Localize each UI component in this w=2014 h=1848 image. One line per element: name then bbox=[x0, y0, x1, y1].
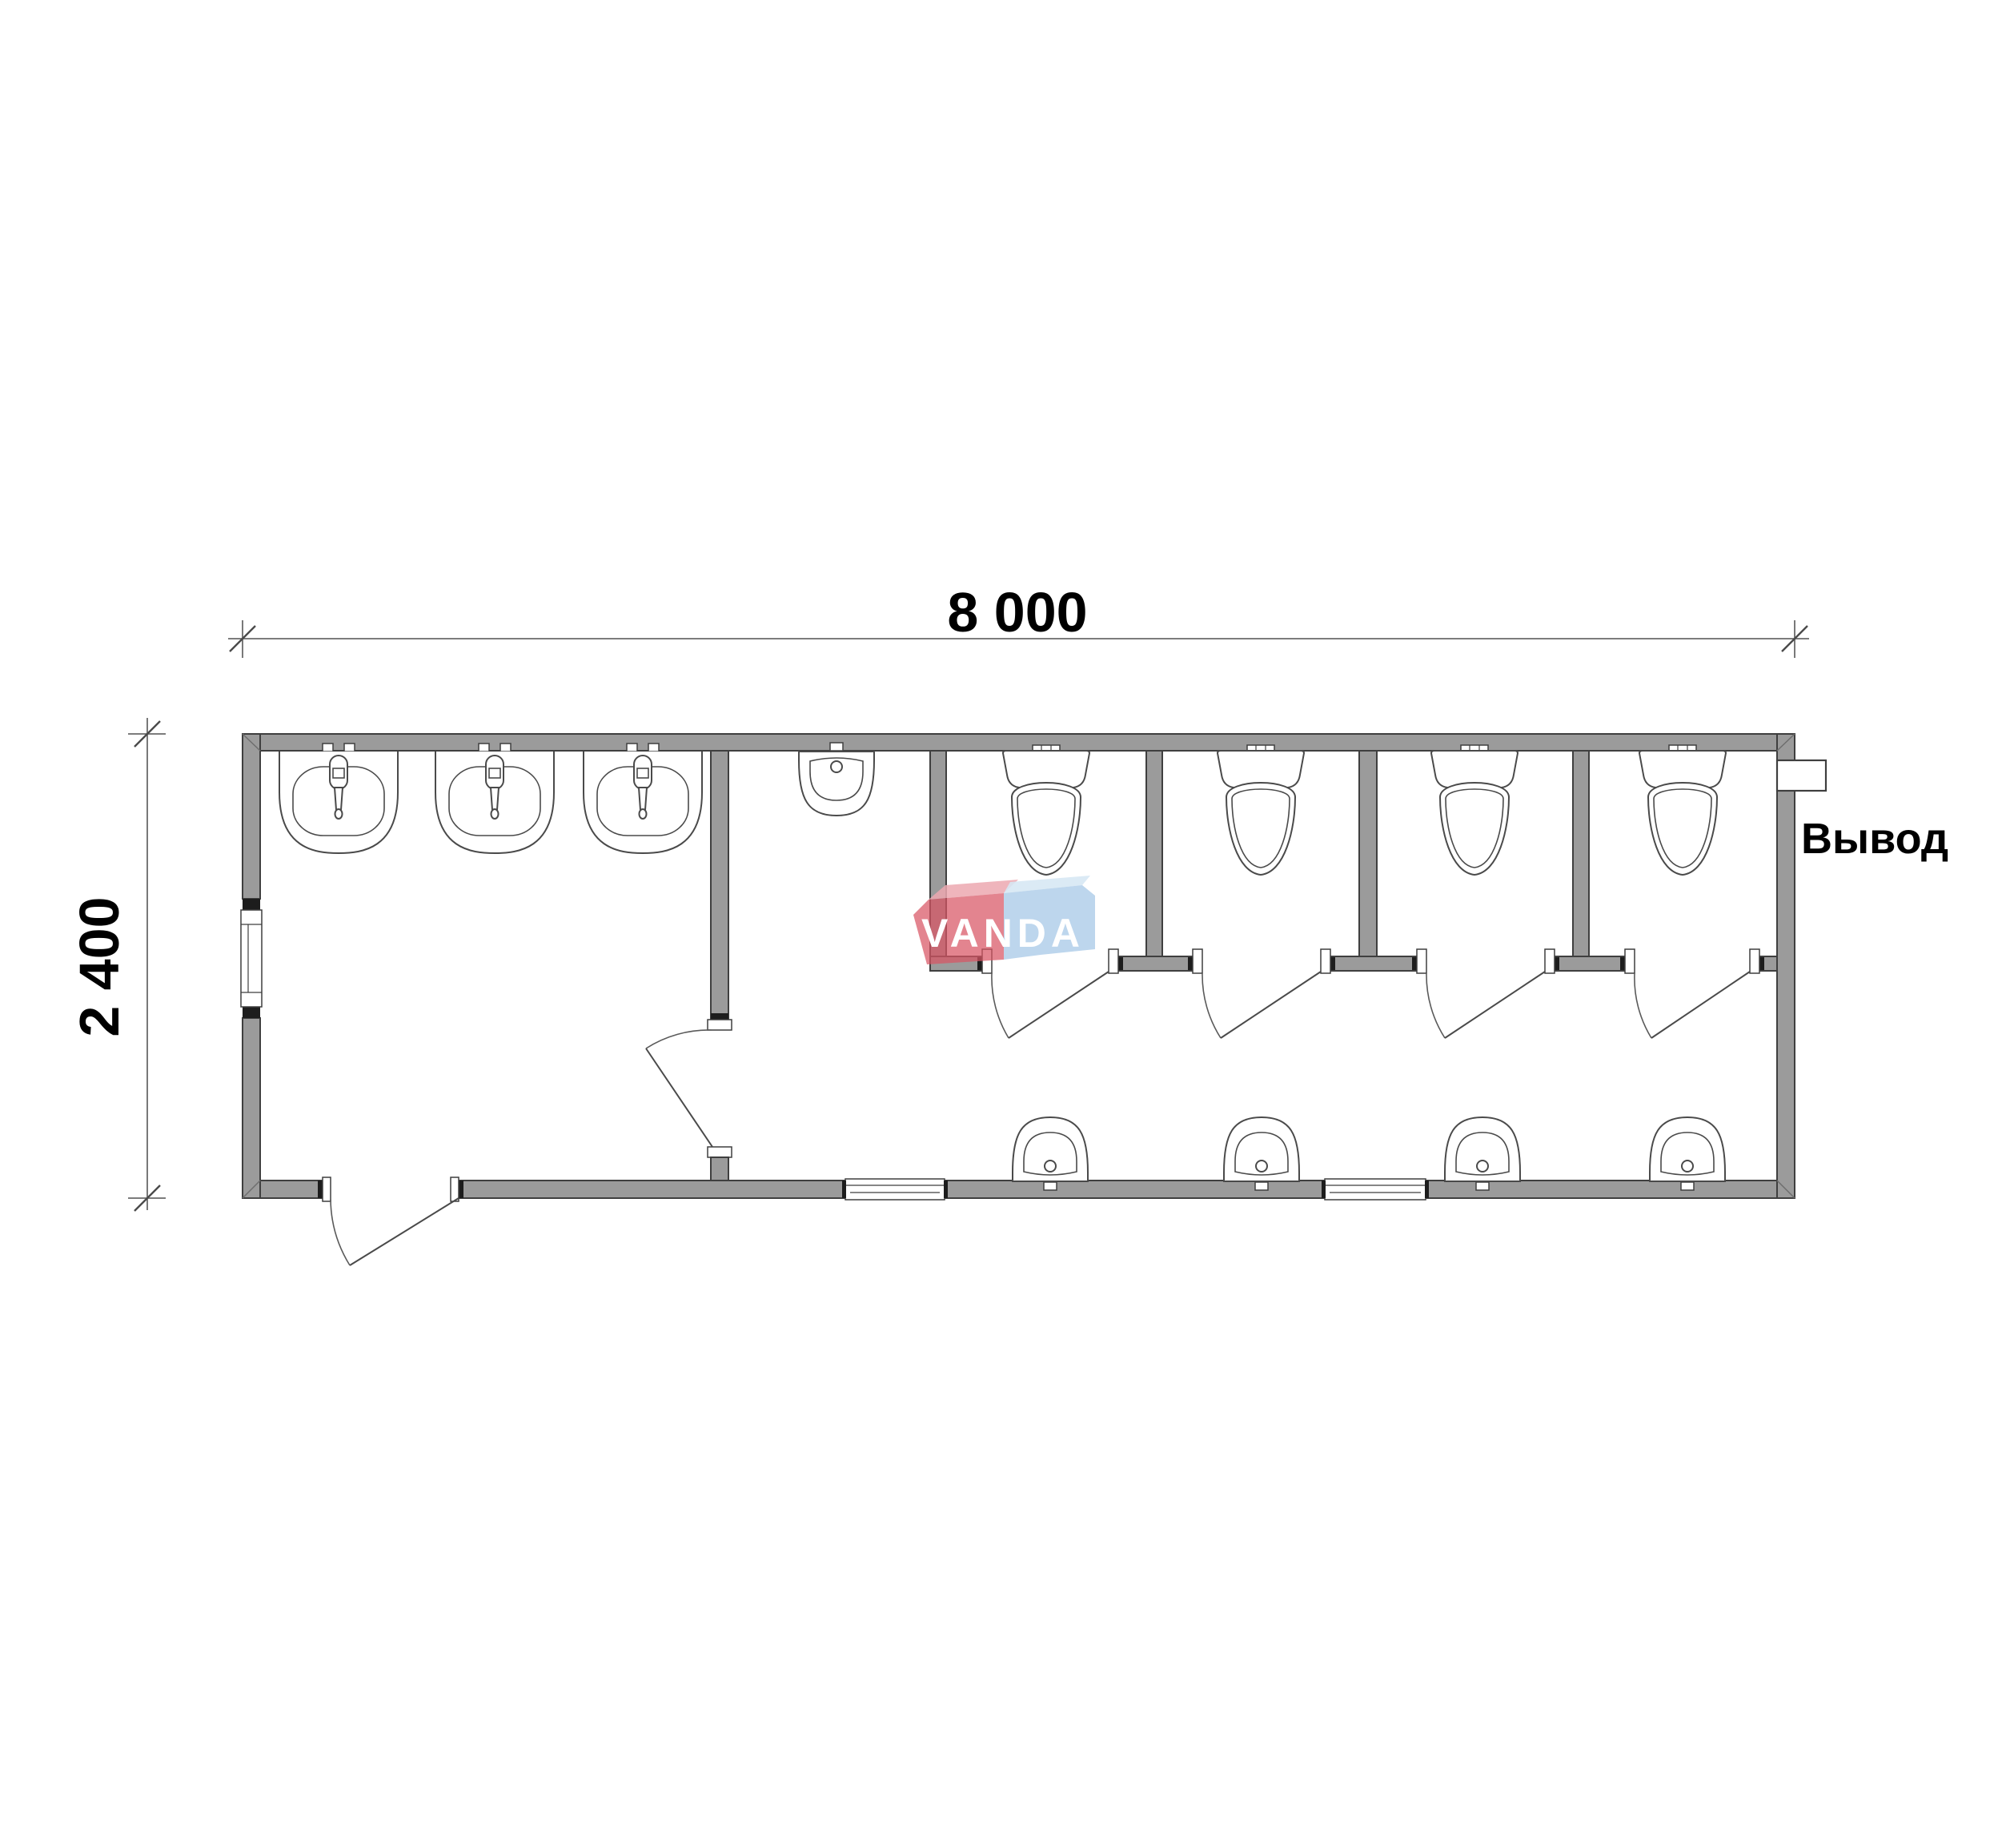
right-wall bbox=[1777, 734, 1795, 1198]
urinal-icon bbox=[1650, 1117, 1725, 1190]
stall-door-swing-1 bbox=[992, 972, 1109, 1038]
urinal-icon bbox=[799, 743, 874, 816]
stall-partition-4 bbox=[1573, 751, 1589, 956]
outlet-label: Вывод bbox=[1801, 815, 1948, 863]
bottom-window-1 bbox=[842, 1179, 948, 1200]
bottom-wall bbox=[243, 1181, 1795, 1198]
dimension-height: 2 400 bbox=[68, 718, 166, 1211]
toilet-icon bbox=[1003, 745, 1089, 875]
toilet-icon bbox=[1639, 745, 1726, 875]
top-wall bbox=[243, 734, 1795, 751]
left-window bbox=[241, 899, 262, 1018]
urinal-icon bbox=[1445, 1117, 1520, 1190]
logo-text: VANDA bbox=[921, 911, 1085, 956]
stall-door-swing-3 bbox=[1426, 972, 1545, 1038]
toilet-icon bbox=[1431, 745, 1518, 875]
sink-icon bbox=[279, 744, 398, 853]
stall-partition-2 bbox=[1146, 751, 1162, 956]
urinal-icon bbox=[1224, 1117, 1299, 1190]
urinal-icon bbox=[1013, 1117, 1088, 1190]
floor-plan-canvas: 8 000 2 400 bbox=[0, 0, 2014, 1848]
outlet-pipe bbox=[1777, 760, 1826, 791]
sink-icon bbox=[584, 744, 702, 853]
stall-door-swing-4 bbox=[1635, 972, 1750, 1038]
sink-icon bbox=[435, 744, 554, 853]
stall-door-swing-2 bbox=[1202, 972, 1321, 1038]
toilet-icon bbox=[1218, 745, 1304, 875]
dim-width-label: 8 000 bbox=[947, 581, 1087, 643]
dimension-width: 8 000 bbox=[228, 581, 1809, 658]
washroom-door-swing bbox=[646, 1030, 712, 1147]
stall-partition-3 bbox=[1359, 751, 1377, 956]
washroom-partition bbox=[708, 751, 732, 1181]
bottom-window-2 bbox=[1322, 1179, 1429, 1200]
entrance-door-swing bbox=[318, 1177, 463, 1265]
dim-height-label: 2 400 bbox=[68, 896, 130, 1036]
